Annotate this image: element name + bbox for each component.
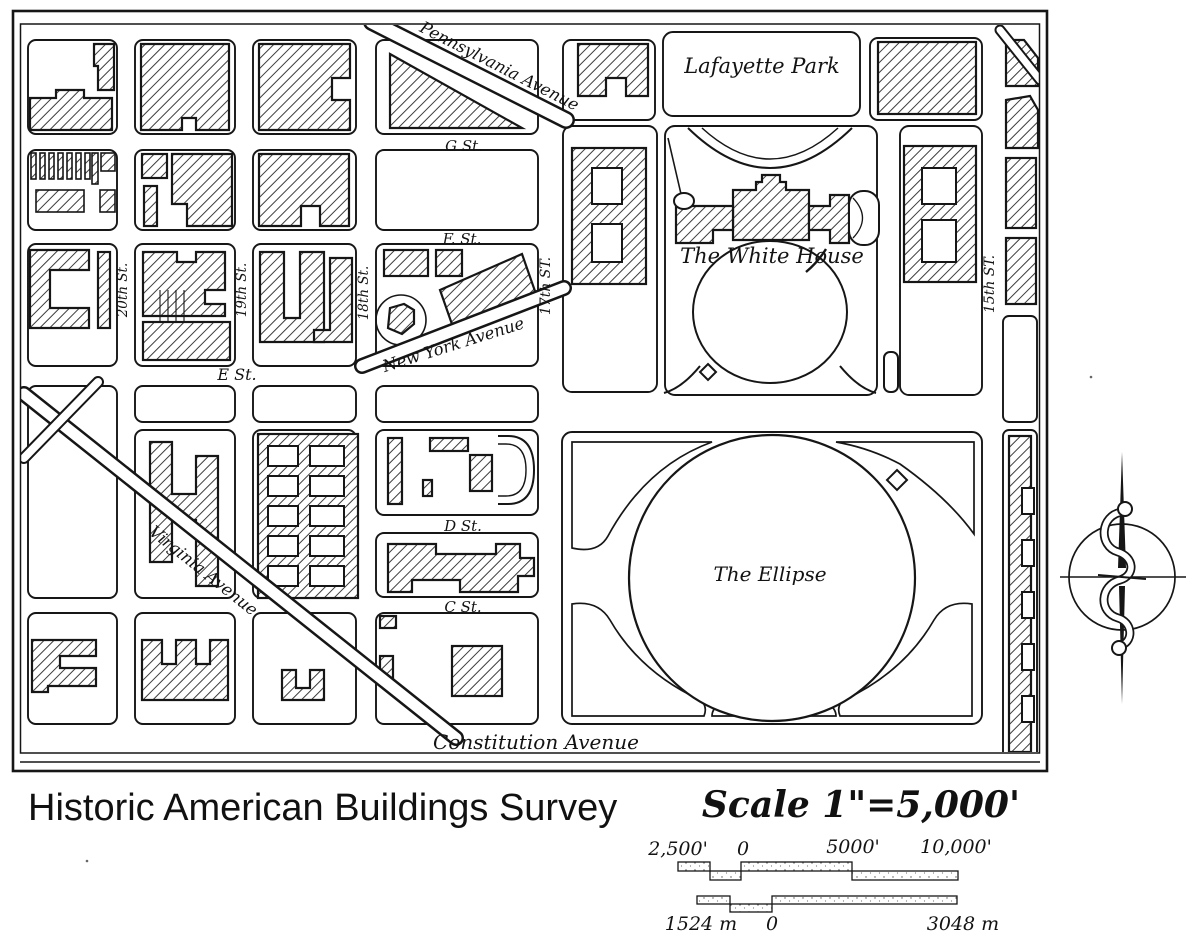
sheet-footer: Historic American Buildings Survey Scale… xyxy=(28,784,1020,829)
white-house-label: The White House xyxy=(680,244,864,268)
meters-tick-3048: 3048 m xyxy=(927,913,999,935)
constitution-avenue-label: Constitution Avenue xyxy=(433,730,639,754)
feet-tick-0: 0 xyxy=(737,838,749,860)
scale-bar-meters: 1524 m 0 3048 m xyxy=(665,896,999,935)
meters-tick-1524: 1524 m xyxy=(665,913,737,935)
f-street-label: F. St. xyxy=(442,230,482,248)
feet-tick-2500: 2,500' xyxy=(647,838,708,860)
scale-heading: Scale 1"=5,000' xyxy=(702,784,1020,826)
map-drawing: Pennsylvania Avenue Lafayette Park G St.… xyxy=(0,0,1200,939)
15th-street-label: 15th ST. xyxy=(982,255,998,313)
feet-tick-10000: 10,000' xyxy=(920,836,992,858)
d-street-label: D St. xyxy=(443,517,482,535)
e-street-label: E St. xyxy=(216,365,256,384)
18th-street-label: 18th St. xyxy=(356,266,372,321)
habs-map-sheet: Pennsylvania Avenue Lafayette Park G St.… xyxy=(0,0,1200,939)
19th-street-label: 19th St. xyxy=(234,263,250,318)
survey-title: Historic American Buildings Survey xyxy=(28,787,617,829)
g-street-label: G St. xyxy=(445,137,483,155)
20th-street-label: 20th St. xyxy=(115,263,131,319)
17th-street-label: 17th ST. xyxy=(538,257,554,315)
lafayette-park-label: Lafayette Park xyxy=(683,54,840,78)
feet-tick-5000: 5000' xyxy=(826,836,880,858)
ellipse-label: The Ellipse xyxy=(713,562,826,586)
compass-rose-icon xyxy=(1060,452,1186,704)
scale-bar-feet: 2,500' 0 5000' 10,000' xyxy=(647,836,992,880)
c-street-label: C St. xyxy=(444,598,481,616)
meters-tick-0: 0 xyxy=(766,913,778,935)
